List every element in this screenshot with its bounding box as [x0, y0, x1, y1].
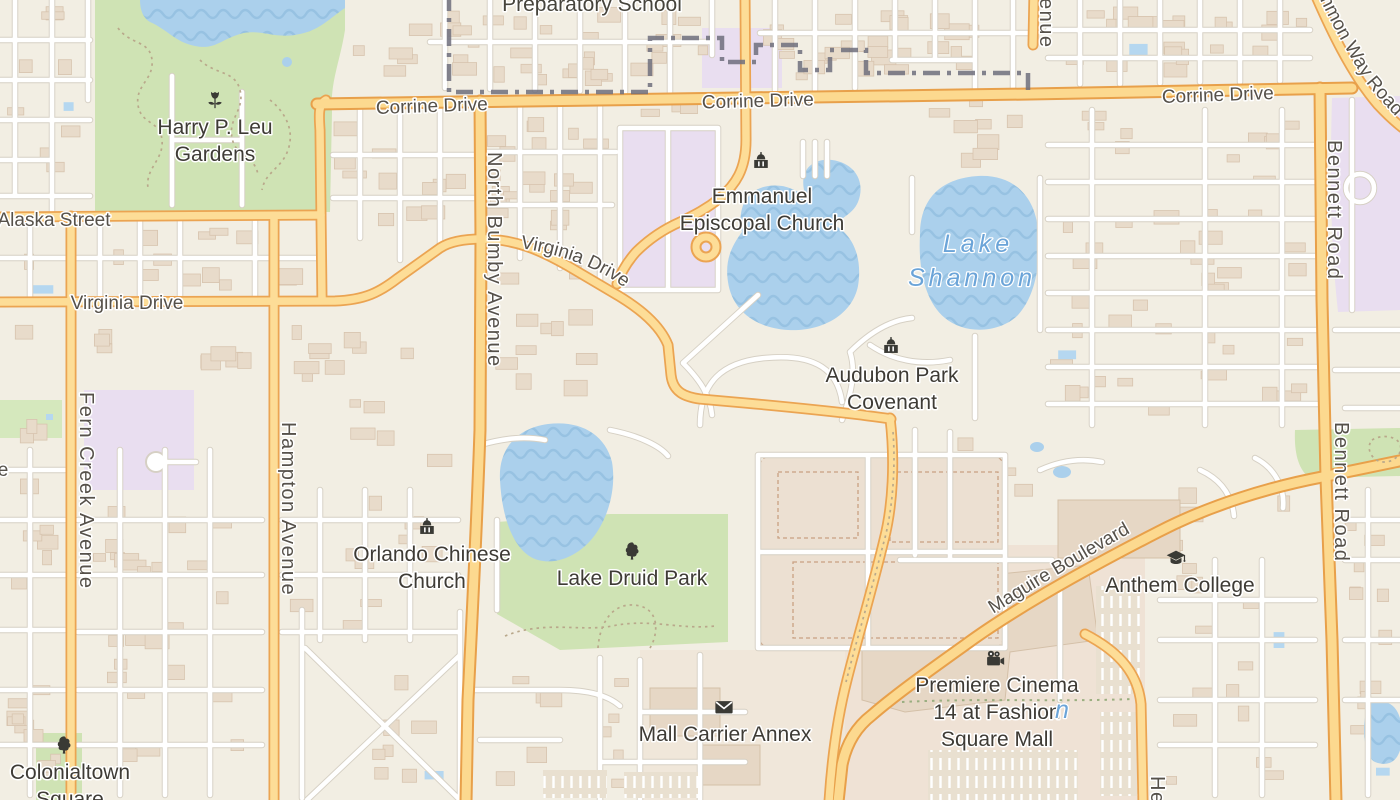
poi-label-colonialtown-square[interactable]: Colonialtown	[10, 761, 130, 784]
building	[210, 228, 228, 235]
building	[532, 138, 546, 150]
road-label-bennett-road-north: Bennett Road	[1323, 140, 1345, 280]
building	[678, 17, 700, 25]
building	[516, 314, 538, 326]
building	[1133, 300, 1147, 310]
building	[527, 747, 547, 762]
building	[1121, 129, 1132, 139]
building	[513, 676, 529, 683]
building	[976, 119, 992, 129]
building	[351, 428, 375, 439]
building	[1263, 387, 1278, 402]
building	[1179, 488, 1197, 504]
building	[540, 26, 552, 35]
road-label-corrine-drive-east: Corrine Drive	[1162, 83, 1275, 108]
building	[427, 454, 452, 466]
building	[514, 17, 526, 29]
poi-label-premiere-cinema[interactable]: Premiere Cinema	[915, 674, 1079, 697]
building	[1181, 241, 1195, 255]
building	[494, 67, 504, 83]
building	[521, 64, 541, 73]
building	[379, 173, 397, 189]
poi-label-colonialtown-square[interactable]: Square	[36, 788, 104, 800]
building	[453, 26, 471, 35]
building	[487, 136, 505, 147]
road-label-corrine-drive-center: Corrine Drive	[702, 90, 814, 114]
building	[202, 268, 219, 283]
poi-label-harry-p-leu-gardens[interactable]: Harry P. Leu	[157, 116, 272, 139]
building	[27, 419, 37, 433]
building	[384, 66, 406, 77]
building	[344, 332, 360, 348]
road-label-avenue-stub: Avenue	[1035, 0, 1057, 48]
building	[1063, 222, 1072, 233]
building	[591, 69, 608, 79]
building	[868, 36, 888, 48]
building	[569, 128, 579, 139]
building	[516, 346, 536, 355]
building	[1284, 121, 1299, 129]
building	[496, 772, 514, 786]
building	[1377, 589, 1388, 602]
building	[292, 326, 301, 340]
building	[325, 361, 344, 375]
building	[217, 592, 229, 604]
building	[121, 749, 137, 762]
building	[615, 679, 629, 687]
road-label-virginia-drive-west: Virginia Drive	[71, 293, 184, 314]
building	[528, 118, 544, 132]
road-label-bennett-road-south: Bennett Road	[1330, 422, 1352, 562]
building	[1289, 264, 1306, 276]
building	[836, 14, 852, 24]
building	[40, 525, 53, 534]
map-svg[interactable]: Corrine DriveCorrine DriveCorrine DriveA…	[0, 0, 1400, 800]
building	[401, 348, 413, 359]
building	[1218, 268, 1242, 279]
building	[188, 561, 209, 570]
building	[1238, 706, 1249, 721]
poi-label-orlando-chinese-church[interactable]: Church	[398, 570, 466, 593]
building	[402, 769, 416, 782]
building	[1291, 384, 1306, 393]
building	[369, 496, 381, 510]
road-label-fern-creek-avenue: Fern Creek Avenue	[75, 392, 97, 589]
pool	[64, 102, 74, 111]
building	[511, 48, 534, 58]
building	[389, 48, 412, 59]
pool	[1376, 768, 1390, 776]
mail-icon[interactable]	[715, 701, 732, 713]
building	[334, 122, 357, 136]
building	[409, 24, 432, 36]
building	[350, 400, 361, 408]
building	[1227, 155, 1239, 162]
building	[375, 768, 388, 780]
building	[929, 109, 950, 118]
building	[94, 334, 109, 346]
building	[1210, 45, 1223, 53]
building	[219, 280, 231, 290]
building	[1223, 345, 1234, 354]
road-label-hampton-avenue: Hampton Avenue	[277, 422, 299, 596]
building	[1350, 588, 1363, 600]
building	[12, 714, 23, 724]
poi-label-harry-p-leu-gardens[interactable]: Gardens	[175, 143, 256, 166]
road-label-north-bumby-avenue: North Bumby Avenue	[483, 152, 505, 368]
building	[211, 347, 236, 361]
pool	[1058, 350, 1076, 359]
road-label-street-fragment: e	[0, 460, 8, 481]
building	[453, 63, 477, 76]
road-label-herndon-avenue: Herndon Avenue	[1146, 776, 1168, 800]
building	[1007, 115, 1022, 127]
poi-label-anthem-college[interactable]: Anthem College	[1105, 574, 1254, 597]
building	[19, 60, 32, 73]
building	[569, 64, 578, 78]
building	[641, 109, 659, 116]
building	[423, 182, 439, 194]
building	[973, 148, 998, 159]
building	[698, 46, 708, 55]
building	[58, 60, 71, 75]
poi-label-lake-druid-park[interactable]: Lake Druid Park	[557, 567, 708, 590]
water-label-lake-shannon: Shannon	[908, 264, 1036, 292]
building	[780, 51, 795, 58]
building	[278, 269, 303, 285]
poi-label-audubon-park-covenant[interactable]: Audubon Park	[825, 364, 959, 387]
building	[521, 172, 545, 185]
building	[1015, 484, 1033, 496]
poi-label-emmanuel-episcopal-church[interactable]: Episcopal Church	[680, 212, 845, 235]
building	[1296, 18, 1306, 26]
building	[1118, 378, 1133, 386]
area-label-preparatory-school: Preparatory School	[502, 0, 682, 16]
building	[609, 714, 619, 723]
building	[928, 42, 949, 54]
pool	[31, 285, 53, 293]
building	[652, 52, 667, 63]
building	[552, 322, 564, 336]
building	[954, 120, 978, 132]
building	[1072, 296, 1092, 309]
map-canvas[interactable]: Corrine DriveCorrine DriveCorrine DriveA…	[0, 0, 1400, 800]
poi-label-emmanuel-episcopal-church[interactable]: Emmanuel	[712, 185, 812, 208]
building	[977, 135, 999, 150]
building	[1238, 662, 1253, 670]
building	[1087, 11, 1104, 18]
building	[446, 174, 465, 188]
road-label-alaska-street: Alaska Street	[0, 210, 111, 231]
water-label-water-label-fragment: n	[1055, 696, 1073, 724]
poi-label-premiere-cinema[interactable]: 14 at Fashion	[933, 701, 1060, 724]
building	[582, 58, 594, 70]
building	[294, 362, 319, 374]
building	[540, 693, 562, 707]
building	[353, 46, 364, 56]
building	[373, 749, 385, 759]
poi-label-premiere-cinema[interactable]: Square Mall	[941, 728, 1053, 751]
building	[61, 126, 80, 137]
building	[309, 344, 332, 354]
building	[181, 274, 201, 286]
building	[958, 438, 973, 451]
building	[1173, 715, 1196, 727]
building	[412, 721, 437, 733]
poi-label-mall-carrier-annex[interactable]: Mall Carrier Annex	[639, 723, 812, 746]
building	[238, 353, 251, 369]
building	[576, 353, 597, 364]
building	[569, 310, 593, 325]
building	[141, 270, 158, 281]
water-label-lake-shannon: Lake	[943, 230, 1013, 258]
building	[43, 550, 52, 564]
building	[1287, 338, 1302, 345]
road-label-corrine-drive-west: Corrine Drive	[376, 94, 489, 119]
poi-label-orlando-chinese-church[interactable]: Orlando Chinese	[353, 543, 511, 566]
poi-label-audubon-park-covenant[interactable]: Covenant	[847, 391, 937, 414]
building	[364, 402, 384, 413]
building	[1283, 243, 1306, 252]
building	[516, 374, 531, 390]
building	[1065, 385, 1080, 401]
building	[378, 213, 393, 225]
building	[564, 380, 587, 396]
building	[377, 431, 394, 445]
building	[584, 139, 609, 148]
building	[868, 47, 888, 58]
building	[1164, 63, 1187, 77]
building	[483, 16, 503, 25]
building	[15, 325, 33, 339]
building	[1183, 564, 1197, 574]
